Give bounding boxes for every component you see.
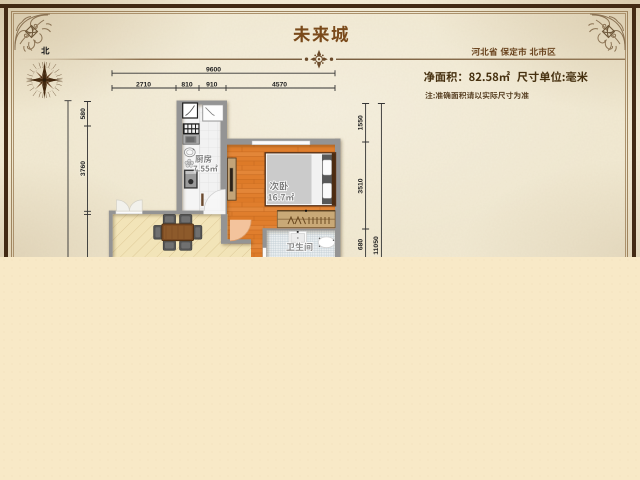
svg-text:1550: 1550: [357, 115, 364, 130]
svg-text:2710: 2710: [136, 81, 151, 88]
svg-text:910: 910: [206, 81, 218, 88]
svg-text:11050: 11050: [373, 236, 380, 255]
svg-text:3760: 3760: [80, 161, 87, 176]
svg-text:4570: 4570: [272, 81, 287, 88]
svg-text:3510: 3510: [357, 178, 364, 193]
svg-text:810: 810: [181, 81, 193, 88]
svg-text:580: 580: [80, 108, 87, 120]
svg-text:680: 680: [357, 239, 364, 251]
